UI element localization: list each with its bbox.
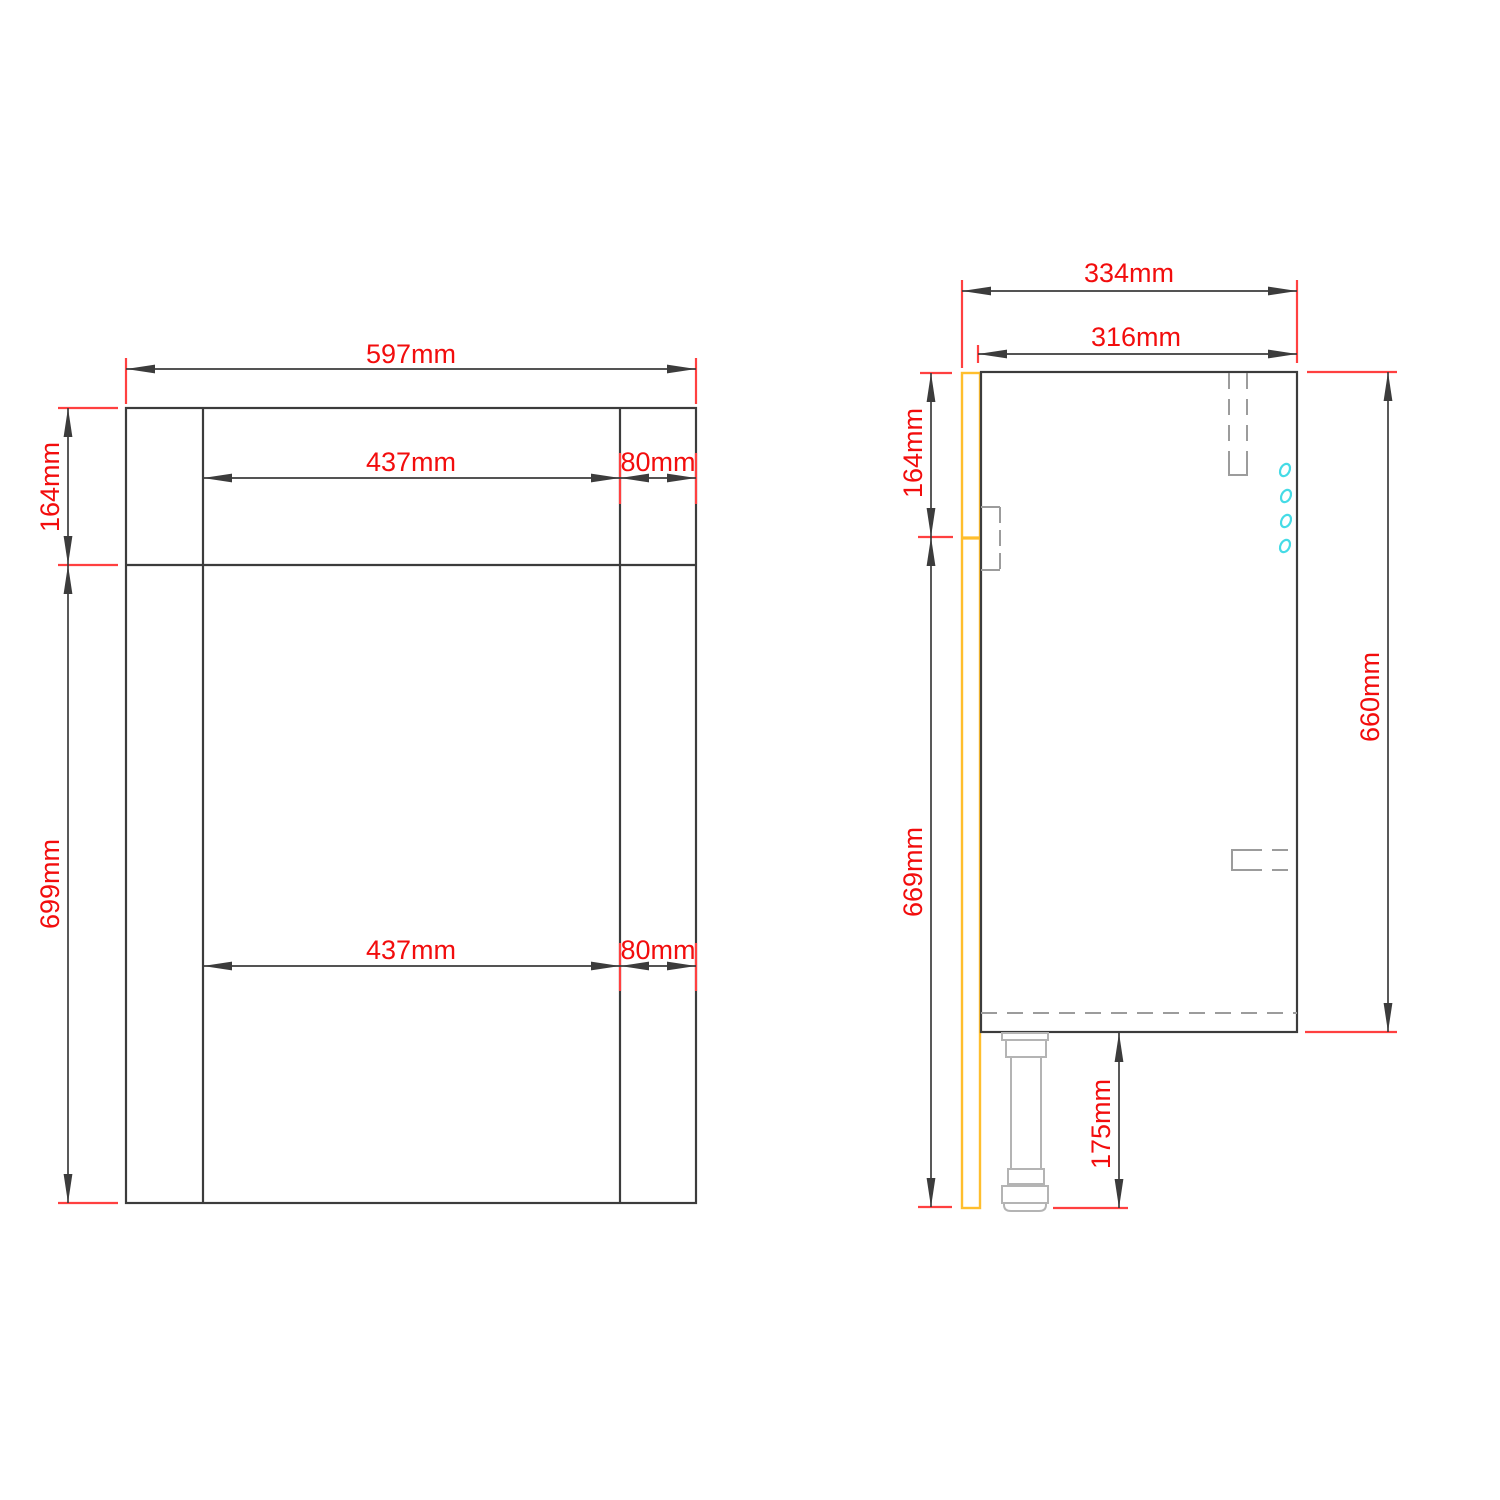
dim-front-body-height: 699mm bbox=[35, 565, 118, 1203]
drawing-svg: 597mm 164mm 699mm 437mm 80mm bbox=[0, 0, 1500, 1500]
bracket-end bbox=[1232, 850, 1246, 870]
dim-label: 437mm bbox=[366, 935, 456, 965]
dim-side-front-height: 669mm bbox=[898, 537, 952, 1207]
hinge-plate bbox=[981, 507, 1000, 570]
dim-label: 80mm bbox=[620, 935, 695, 965]
leg-foot bbox=[1002, 1186, 1048, 1203]
dim-label: 316mm bbox=[1091, 322, 1181, 352]
dim-label: 334mm bbox=[1084, 258, 1174, 288]
dim-front-opening-bottom: 437mm 80mm bbox=[203, 935, 696, 991]
leg-shaft bbox=[1011, 1057, 1041, 1169]
dim-label: 175mm bbox=[1086, 1079, 1116, 1169]
shelf-pin-hole bbox=[1278, 538, 1292, 554]
carcass-outline bbox=[981, 372, 1297, 1032]
leg-joint bbox=[1008, 1169, 1044, 1184]
lower-bracket bbox=[1232, 850, 1297, 870]
shelf-pin-hole bbox=[1278, 462, 1292, 478]
top-bracket bbox=[1229, 373, 1247, 475]
dim-label: 437mm bbox=[366, 447, 456, 477]
front-view: 597mm 164mm 699mm 437mm 80mm bbox=[35, 339, 696, 1203]
dim-label: 80mm bbox=[620, 447, 695, 477]
shelf-pin-hole bbox=[1279, 488, 1293, 504]
dim-label: 164mm bbox=[35, 442, 65, 532]
dim-label: 164mm bbox=[898, 408, 928, 498]
shelf-pin-hole bbox=[1279, 513, 1293, 529]
dim-front-top-height: 164mm bbox=[35, 408, 118, 565]
shelf-pin-holes bbox=[1278, 462, 1293, 554]
bracket-end bbox=[1229, 462, 1247, 475]
dim-label: 597mm bbox=[366, 339, 456, 369]
side-view: 334mm 316mm 164mm 669mm 660mm bbox=[898, 258, 1397, 1211]
dim-front-width: 597mm bbox=[126, 339, 696, 404]
dim-label: 669mm bbox=[898, 827, 928, 917]
dim-label: 699mm bbox=[35, 839, 65, 929]
front-panel bbox=[962, 373, 980, 1208]
technical-drawing-canvas: 597mm 164mm 699mm 437mm 80mm bbox=[0, 0, 1500, 1500]
leg-foot-cap bbox=[1004, 1203, 1046, 1211]
dim-side-depth-body: 316mm bbox=[978, 322, 1297, 363]
dim-label: 660mm bbox=[1355, 652, 1385, 742]
dim-side-body-height: 660mm bbox=[1305, 372, 1397, 1032]
adjustable-leg bbox=[1002, 1033, 1048, 1211]
dim-side-leg-height: 175mm bbox=[1053, 1033, 1128, 1208]
cabinet-outline bbox=[126, 408, 696, 1203]
dim-side-top-height: 164mm bbox=[898, 373, 953, 537]
dim-front-opening-top: 437mm 80mm bbox=[203, 447, 696, 504]
leg-collar bbox=[1006, 1040, 1046, 1057]
leg-flange bbox=[1002, 1033, 1048, 1040]
